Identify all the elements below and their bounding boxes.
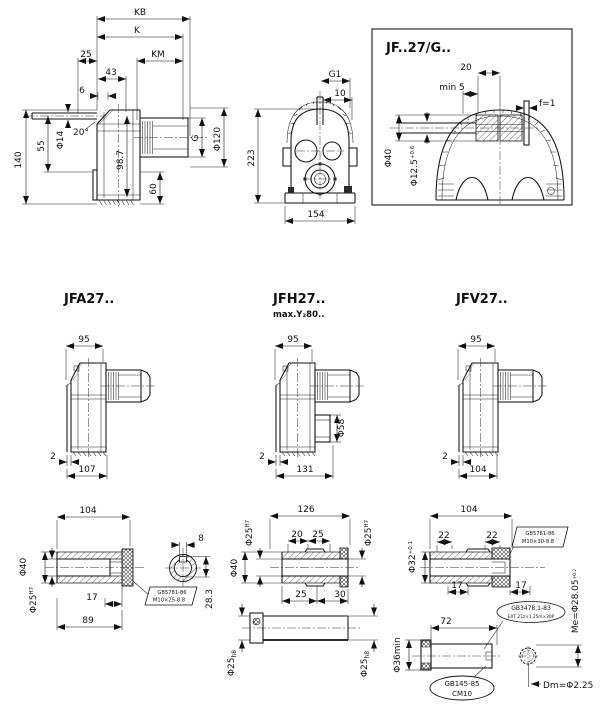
jfa-dim-length: 107 <box>78 465 95 475</box>
shaft-jfa-section <box>165 542 210 588</box>
dim-kb: KB <box>134 8 146 18</box>
dim-43: 43 <box>105 68 116 78</box>
dim-angle: 20° <box>73 128 89 138</box>
dim-k: K <box>134 26 141 36</box>
jfh-subtitle: max.Y₂80.. <box>273 310 324 320</box>
dim-min5: min 5 <box>439 83 465 93</box>
jfv-title: JFV27.. <box>455 292 508 307</box>
dim-f1: f=1 <box>539 99 555 109</box>
detail-title: JF..27/G.. <box>385 41 451 56</box>
shafth-dim-dia40: Φ40 <box>230 558 240 577</box>
dim-25: 25 <box>80 50 91 60</box>
shaftv-dim-22a: 22 <box>438 531 449 541</box>
shafta-dim-key-height: 28.3 <box>205 589 215 609</box>
shafth-dim-20: 20 <box>291 530 303 540</box>
shafth-dim-126: 126 <box>297 505 314 515</box>
dim-6: 6 <box>79 86 85 96</box>
dim-60: 60 <box>149 183 159 195</box>
shaft-jfh-geometry <box>270 548 360 587</box>
dim-10: 10 <box>334 89 346 99</box>
jfh-dimensions <box>268 346 341 479</box>
dim-98-7: 98.7 <box>116 150 126 170</box>
jfh-geometry <box>276 358 365 458</box>
dim-dia14: Φ14 <box>56 130 66 149</box>
shafth-dim-bore-left: Φ25H7 <box>245 519 255 546</box>
shafth-dim-shaft-left: Φ25h8 <box>227 650 238 676</box>
jfv-dim-2: 2 <box>442 452 448 462</box>
shaftv-dim-17a: 17 <box>451 581 462 591</box>
shafta-dim-89: 89 <box>82 616 94 626</box>
detail-box: JF..27/G.. 20 min 5 f=1 Φ40 Φ12.5+0.6 <box>372 29 572 205</box>
dim-223: 223 <box>247 149 257 166</box>
front-view: G1 10 223 154 <box>247 70 357 224</box>
shaftv-dim-72: 72 <box>440 617 451 627</box>
shaft-jfh-lower-geometry <box>238 604 378 652</box>
model-jfv: JFV27.. 95 2 104 <box>442 292 548 479</box>
shafth-dim-shaft-right: Φ25h8 <box>360 651 371 677</box>
jfa-geometry <box>67 358 156 458</box>
shafta-dim-104: 104 <box>79 506 96 516</box>
model-jfa: JFA27.. 95 2 107 <box>50 292 156 479</box>
jfa-title: JFA27.. <box>63 292 114 307</box>
shaftv-dim-me: Me=Φ28.05+0.2 <box>571 569 581 633</box>
shaftv-spline-spec-2: EXT 21z×1.25m×30P <box>508 614 555 620</box>
shaftv-spline-spec-1: GB3478.1-83 <box>511 605 551 612</box>
shaft-jfv: 104 22 22 Φ32+0.1 17 17 GB5781-86 M10×30… <box>393 505 593 700</box>
shafta-bolt-spec-2: M10×25-8.8 <box>153 598 185 604</box>
dim-dia120: Φ120 <box>213 127 223 152</box>
shafth-dim-25a: 25 <box>312 530 323 540</box>
shaftv-dim-104: 104 <box>460 505 477 515</box>
jfh-dim-boss: Φ58 <box>337 418 347 437</box>
jfv-dim-length: 104 <box>469 465 486 475</box>
shaftv-center-spec-1: GB145-85 <box>444 680 479 688</box>
jfh-title: JFH27.. <box>272 292 326 307</box>
jfv-dim-width: 95 <box>470 335 481 345</box>
shaftv-bolt-spec-2: M10×30-8.8 <box>522 539 554 545</box>
front-view-geometry <box>283 91 357 203</box>
shaftv-bolt-spec-1: GB5781-86 <box>525 531 554 537</box>
shaft-jfa: 104 Φ40 Φ25H7 17 89 8 28.3 GB5781-86 M10… <box>19 506 215 630</box>
dim-g1: G1 <box>329 70 342 80</box>
drawing-page: KB K 25 KM 43 6 Φ14 20° 55 140 98.7 60 G… <box>0 0 600 710</box>
technical-drawing: KB K 25 KM 43 6 Φ14 20° 55 140 98.7 60 G… <box>0 0 600 710</box>
shafth-dim-bore-right: Φ25H7 <box>364 519 374 546</box>
jfh-dim-width: 95 <box>287 335 298 345</box>
detail-geometry <box>390 101 564 204</box>
shaftv-dim-dia32: Φ32+0.1 <box>408 541 418 573</box>
shaftv-dim-17b: 17 <box>515 581 526 591</box>
shaft-jfa-geometry <box>45 549 146 586</box>
dim-dia40: Φ40 <box>384 148 394 167</box>
shaft-jfh: 126 Φ25H7 Φ25H7 20 25 Φ40 25 30 Φ25h8 Φ2… <box>227 505 378 677</box>
jfa-dim-2: 2 <box>50 452 56 462</box>
dim-140: 140 <box>14 151 24 168</box>
shaftv-dim-dia36: Φ36min <box>393 637 403 673</box>
model-jfh: JFH27.. max.Y₂80.. 95 Φ58 2 131 <box>259 292 365 479</box>
shaftv-dim-22b: 22 <box>486 531 497 541</box>
dim-55: 55 <box>37 140 47 151</box>
dim-dia125: Φ12.5+0.6 <box>410 145 420 186</box>
dim-154: 154 <box>307 210 324 220</box>
shafth-dim-25b: 25 <box>295 590 306 600</box>
shafta-dim-dia40: Φ40 <box>19 557 29 576</box>
shafta-dim-key-width: 8 <box>198 534 204 544</box>
shaft-jfa-dimensions <box>41 517 130 630</box>
jfv-geometry <box>459 358 548 458</box>
side-view: KB K 25 KM 43 6 Φ14 20° 55 140 98.7 60 G… <box>14 8 228 208</box>
jfh-boss-geometry <box>315 415 330 442</box>
shafta-dim-17: 17 <box>86 593 97 603</box>
dim-km: KM <box>151 50 165 60</box>
jfh-dim-length: 131 <box>296 465 313 475</box>
dim-g: G <box>191 134 201 141</box>
dim-20: 20 <box>460 63 472 73</box>
jfh-dim-2: 2 <box>259 452 265 462</box>
jfa-dim-width: 95 <box>78 335 89 345</box>
shafta-bolt-spec-1: GB5781-86 <box>157 590 186 596</box>
shaftv-center-spec-2: CM10 <box>452 690 472 698</box>
shafth-dim-30: 30 <box>334 590 346 600</box>
shafta-dim-bore: Φ25H7 <box>29 586 39 613</box>
shaftv-dim-dm: Dm=Φ2.25 <box>543 681 593 691</box>
